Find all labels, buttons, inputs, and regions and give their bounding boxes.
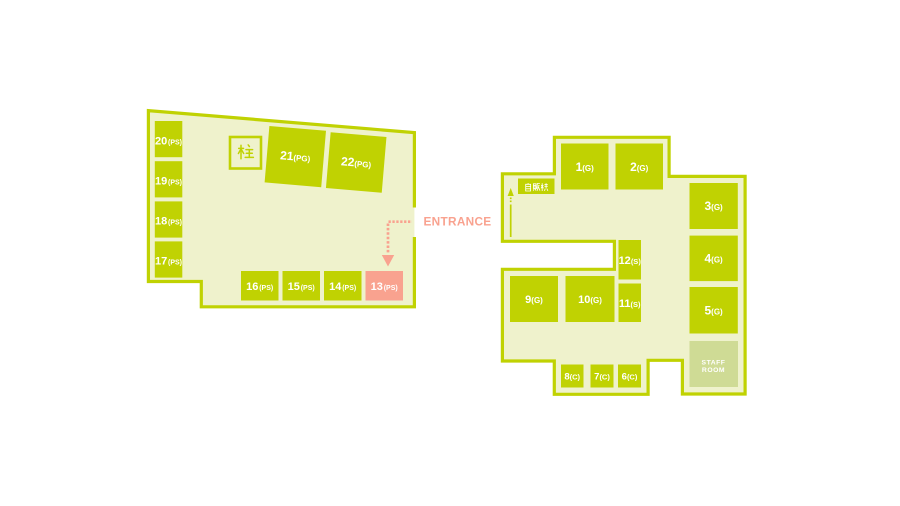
svg-text:12(S): 12(S): [619, 255, 642, 267]
svg-text:ROOM: ROOM: [702, 367, 725, 374]
svg-text:ENTRANCE: ENTRANCE: [424, 215, 492, 229]
svg-text:10(G): 10(G): [578, 294, 602, 306]
svg-text:9(G): 9(G): [525, 294, 543, 306]
svg-text:7(C): 7(C): [594, 372, 610, 383]
svg-text:8(C): 8(C): [564, 372, 580, 383]
svg-text:STAFF: STAFF: [702, 360, 726, 367]
svg-text:11(S): 11(S): [619, 298, 641, 310]
svg-text:6(C): 6(C): [622, 372, 638, 383]
